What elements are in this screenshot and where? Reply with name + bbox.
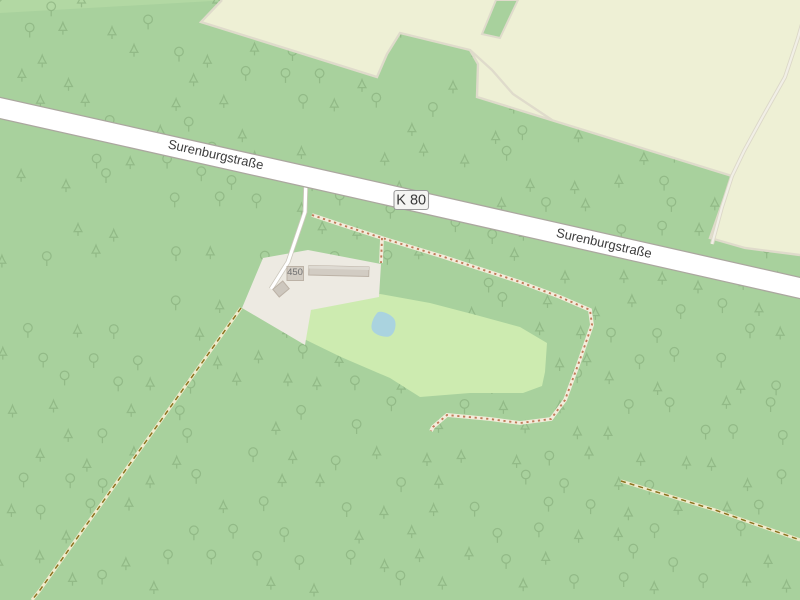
svg-text:450: 450 (287, 267, 303, 278)
svg-text:K 80: K 80 (396, 193, 426, 209)
